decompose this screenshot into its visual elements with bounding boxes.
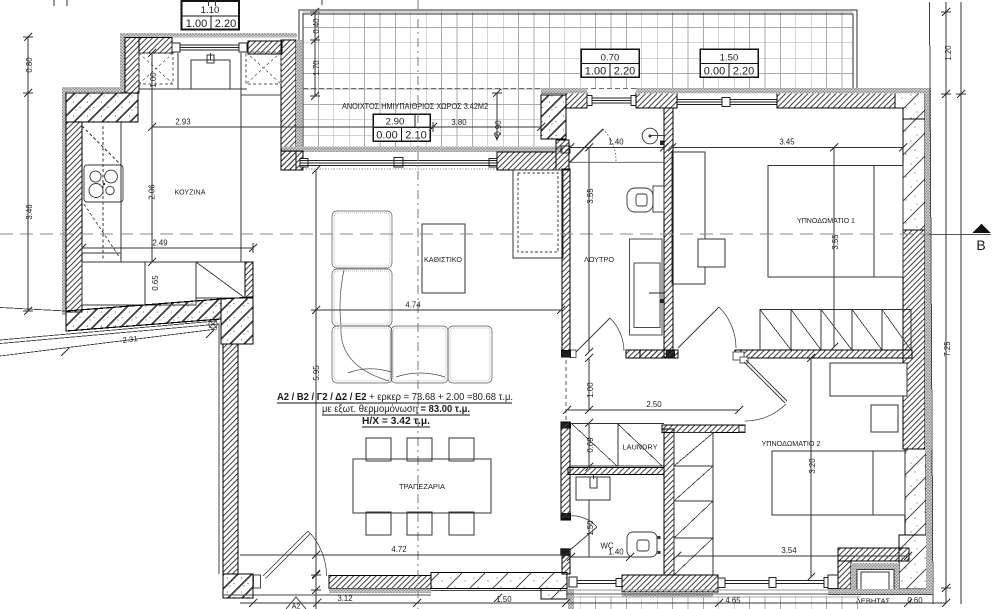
svg-text:Η/Χ = 3.42 τ.μ.: Η/Χ = 3.42 τ.μ. xyxy=(362,416,430,427)
svg-text:0.40: 0.40 xyxy=(312,18,321,34)
svg-text:2.20: 2.20 xyxy=(614,66,635,78)
svg-text:ΚΑΘΙΣΤΙΚΟ: ΚΑΘΙΣΤΙΚΟ xyxy=(424,255,462,264)
svg-text:0.60: 0.60 xyxy=(907,596,923,605)
svg-text:1.50: 1.50 xyxy=(586,520,595,536)
svg-text:4.65: 4.65 xyxy=(725,596,741,605)
svg-text:3.45: 3.45 xyxy=(779,138,795,147)
svg-text:B: B xyxy=(976,237,985,253)
svg-text:0.00: 0.00 xyxy=(376,130,397,142)
svg-text:0.90: 0.90 xyxy=(494,120,503,136)
svg-text:ΑΝΟΙΧΤΟΣ ΗΜΙΥΠΑΙΘΡΙΟΣ ΧΩΡΟΣ 3.: ΑΝΟΙΧΤΟΣ ΗΜΙΥΠΑΙΘΡΙΟΣ ΧΩΡΟΣ 3.42Μ2 xyxy=(342,102,488,111)
svg-text:2.31: 2.31 xyxy=(122,334,138,345)
svg-text:1.00: 1.00 xyxy=(586,382,595,398)
svg-text:1.00: 1.00 xyxy=(585,66,606,78)
svg-text:0.00: 0.00 xyxy=(704,66,725,78)
svg-text:3.54: 3.54 xyxy=(781,546,797,555)
svg-text:1.50: 1.50 xyxy=(496,595,512,604)
svg-text:ΥΠΝΟΔΩΜΑΤΙΟ 2: ΥΠΝΟΔΩΜΑΤΙΟ 2 xyxy=(762,439,821,448)
svg-text:0.65: 0.65 xyxy=(151,275,160,291)
svg-text:0.69: 0.69 xyxy=(586,437,595,452)
svg-text:3.55: 3.55 xyxy=(586,188,595,204)
svg-text:1.00: 1.00 xyxy=(149,72,158,88)
svg-text:1.00: 1.00 xyxy=(186,18,207,30)
svg-text:A2: A2 xyxy=(292,602,301,609)
svg-text:5.95: 5.95 xyxy=(312,365,321,381)
svg-text:ΚΟΥΖΙΝΑ: ΚΟΥΖΙΝΑ xyxy=(175,188,207,197)
svg-text:ΥΠΝΟΔΩΜΑΤΙΟ 1: ΥΠΝΟΔΩΜΑΤΙΟ 1 xyxy=(797,216,855,225)
svg-text:1.40: 1.40 xyxy=(608,548,624,557)
svg-text:3.55: 3.55 xyxy=(831,234,840,250)
svg-text:2.50: 2.50 xyxy=(646,400,662,409)
svg-text:1.50: 1.50 xyxy=(720,53,739,64)
svg-text:2.90: 2.90 xyxy=(386,117,405,128)
svg-text:2.49: 2.49 xyxy=(152,239,167,248)
svg-text:ΛΟΥΤΡΟ: ΛΟΥΤΡΟ xyxy=(584,255,614,264)
svg-text:4.74: 4.74 xyxy=(405,301,421,310)
svg-text:2.20: 2.20 xyxy=(215,18,236,30)
svg-text:2.20: 2.20 xyxy=(733,66,754,78)
svg-text:1.40: 1.40 xyxy=(608,138,624,147)
svg-text:2.93: 2.93 xyxy=(175,118,190,127)
svg-text:7.25: 7.25 xyxy=(943,341,952,357)
svg-text:με εξωτ. θερμομόνωση = 83.00 τ: με εξωτ. θερμομόνωση = 83.00 τ.μ. xyxy=(322,403,470,415)
svg-text:3.46: 3.46 xyxy=(25,204,34,219)
svg-text:3.80: 3.80 xyxy=(451,118,467,127)
svg-text:3.12: 3.12 xyxy=(337,594,352,603)
svg-text:0.80: 0.80 xyxy=(25,57,34,73)
svg-text:1.70: 1.70 xyxy=(312,60,321,76)
svg-text:3.20: 3.20 xyxy=(808,458,817,474)
svg-text:2.10: 2.10 xyxy=(405,130,426,142)
svg-text:1.10: 1.10 xyxy=(201,5,220,16)
svg-text:2.06: 2.06 xyxy=(148,184,157,199)
svg-text:4.72: 4.72 xyxy=(391,545,406,554)
svg-text:ΤΡΑΠΕΖΑΡΙΑ: ΤΡΑΠΕΖΑΡΙΑ xyxy=(399,482,446,491)
svg-text:Α2 / Β2 / Γ2 / Δ2 / Ε2 + ερκερ: Α2 / Β2 / Γ2 / Δ2 / Ε2 + ερκερ = 78.68 +… xyxy=(277,392,513,403)
svg-text:0.70: 0.70 xyxy=(601,53,620,64)
svg-text:1.20: 1.20 xyxy=(944,45,953,61)
svg-text:ΛΕΒΗΤΑΣ: ΛΕΒΗΤΑΣ xyxy=(856,597,891,606)
svg-text:LAUNDRY: LAUNDRY xyxy=(623,443,658,452)
